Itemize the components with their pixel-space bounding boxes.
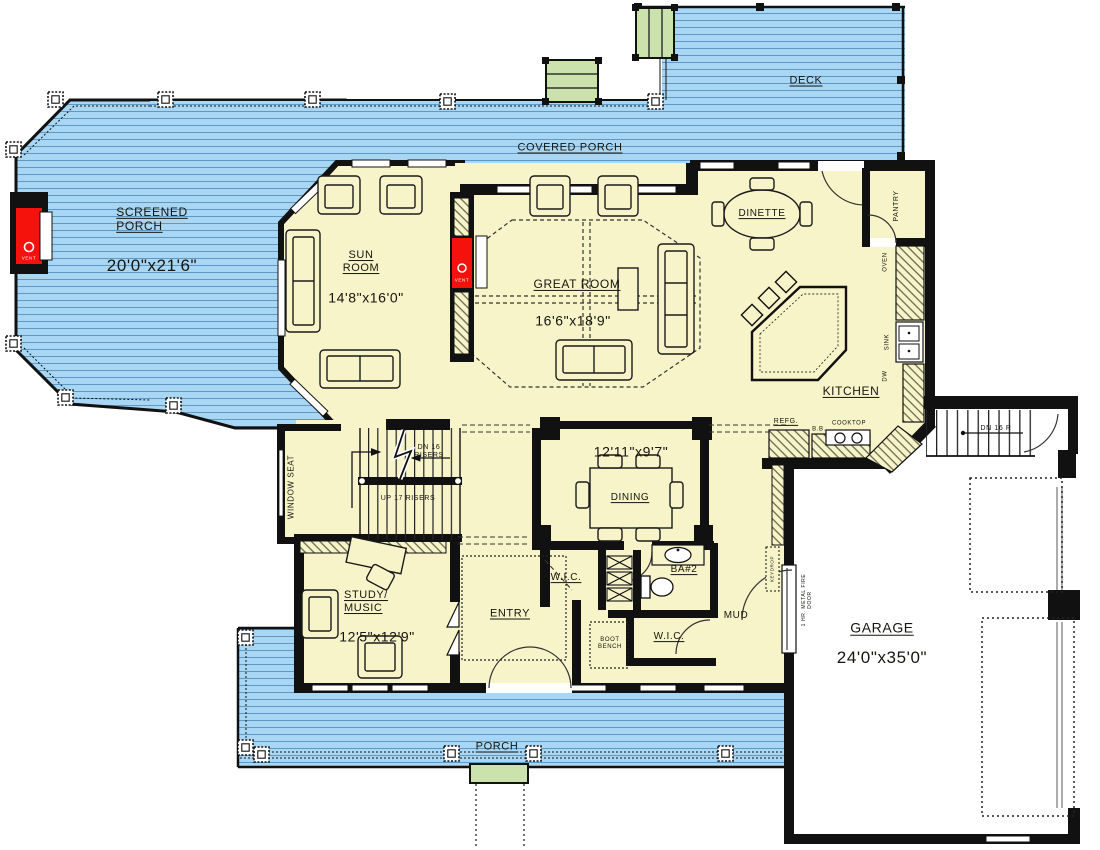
vent-label-great: VENT xyxy=(455,277,469,282)
dining-dims: 12'11"x9'7" xyxy=(594,444,669,461)
sun-room-dims: 14'8"x16'0" xyxy=(328,290,404,307)
sun-room-label: SUN ROOM xyxy=(343,249,380,275)
shelf-cubbies xyxy=(607,556,632,601)
main-staircase xyxy=(352,419,462,541)
refg-label: REFG. xyxy=(774,418,798,426)
garage-stairs-label: DN 16 R xyxy=(980,425,1011,433)
boot-bench-label: BOOT BENCH xyxy=(598,637,622,651)
floor-plan-drawing xyxy=(0,0,1100,850)
dining-label: DINING xyxy=(611,492,650,504)
sink-label: SINK xyxy=(884,334,891,350)
dinette-label: DINETTE xyxy=(739,208,786,220)
study-dims: 12'5"x12'9" xyxy=(339,629,415,646)
keydrop-label: KEYDROP xyxy=(769,556,774,582)
great-room-dims: 16'6"x18'9" xyxy=(535,313,611,330)
stairs-dn-label: DN 16 RISERS xyxy=(414,444,444,461)
bb-label: B.B. xyxy=(812,426,826,433)
entry-label: ENTRY xyxy=(490,608,530,621)
fire-door-label: 1 HR. METAL FIRE DOOR xyxy=(802,574,814,627)
stairs-up-label: UP 17 RISERS xyxy=(381,495,436,503)
window-seat-label: WINDOW SEAT xyxy=(286,455,295,519)
bath2-label: BA#2 xyxy=(671,564,698,576)
shelves-label: SHRD xyxy=(600,571,606,588)
covered-porch-label: COVERED PORCH xyxy=(518,142,623,155)
deck-label: DECK xyxy=(790,75,823,88)
wic2-label: W.I.C. xyxy=(654,631,685,643)
garage-label: GARAGE xyxy=(850,620,914,637)
study-label: STUDY/ MUSIC xyxy=(344,589,388,615)
great-room-label: GREAT ROOM xyxy=(534,277,621,291)
porch-label: PORCH xyxy=(476,741,519,754)
vent-label-screened: VENT xyxy=(22,255,36,260)
wic1-label: W.I.C. xyxy=(551,572,582,584)
screened-porch-dims: 20'0"x21'6" xyxy=(107,256,197,276)
kitchen-label: KITCHEN xyxy=(823,384,880,398)
pantry-label: PANTRY xyxy=(893,190,901,221)
cooktop-label: COOKTOP xyxy=(832,420,866,427)
floor-plan: SCREENED PORCH 20'0"x21'6" COVERED PORCH… xyxy=(0,0,1100,850)
mud-label: MUD xyxy=(724,610,749,622)
screened-porch-label: SCREENED PORCH xyxy=(116,205,187,233)
garage-dims: 24'0"x35'0" xyxy=(837,648,927,668)
screened-porch-fireplace xyxy=(10,192,52,274)
oven-label: OVEN xyxy=(882,252,889,271)
dw-label: DW xyxy=(882,370,889,381)
